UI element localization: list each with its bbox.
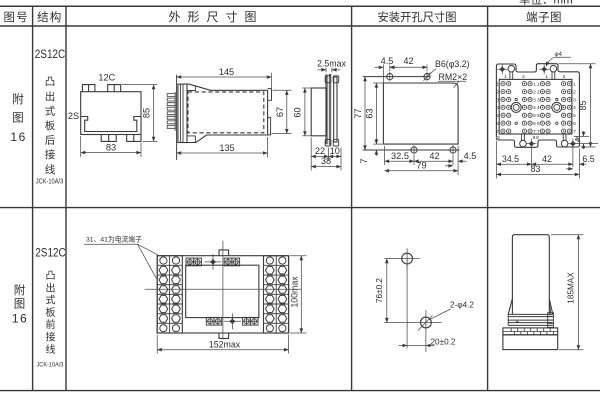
svg-text:10: 10 — [330, 146, 340, 156]
svg-text:式: 式 — [45, 104, 56, 117]
svg-text:接: 接 — [45, 148, 56, 161]
svg-text:79: 79 — [416, 160, 426, 170]
svg-text:185MAX: 185MAX — [567, 272, 576, 304]
svg-text:55: 55 — [533, 113, 541, 119]
svg-text:83: 83 — [106, 143, 116, 153]
svg-text:31、41为电流端子: 31、41为电流端子 — [86, 235, 142, 244]
svg-text:11: 11 — [533, 82, 540, 88]
svg-text:44: 44 — [533, 105, 541, 111]
svg-text:2S12C: 2S12C — [35, 47, 66, 61]
svg-text:76±0.2: 76±0.2 — [375, 278, 384, 303]
svg-text:1: 1 — [573, 82, 576, 88]
svg-text:12C: 12C — [98, 73, 115, 83]
svg-text:单位：mm: 单位：mm — [519, 0, 573, 6]
svg-text:63: 63 — [365, 108, 375, 118]
svg-text:凸: 凸 — [45, 76, 56, 88]
svg-text:3: 3 — [573, 97, 576, 103]
svg-text:端子图: 端子图 — [526, 11, 562, 24]
svg-text:JCK-10A/3: JCK-10A/3 — [36, 177, 64, 186]
svg-text:7: 7 — [359, 158, 369, 163]
svg-text:6: 6 — [573, 121, 576, 127]
svg-text:后: 后 — [45, 135, 56, 147]
svg-text:85: 85 — [578, 101, 588, 111]
svg-text:38: 38 — [321, 156, 331, 166]
svg-text:图: 图 — [12, 112, 24, 125]
svg-text:4: 4 — [496, 105, 499, 111]
svg-text:1: 1 — [504, 74, 507, 80]
svg-text:32.5: 32.5 — [391, 151, 409, 161]
svg-text:66: 66 — [533, 121, 541, 127]
svg-text:16: 16 — [12, 312, 28, 326]
svg-text:7: 7 — [573, 129, 576, 135]
svg-text:22: 22 — [315, 146, 325, 156]
svg-text:4.5: 4.5 — [464, 151, 477, 161]
svg-text:2: 2 — [573, 89, 576, 95]
svg-text:4.5: 4.5 — [381, 56, 394, 66]
svg-text:附: 附 — [12, 92, 24, 106]
svg-text:出: 出 — [45, 90, 56, 103]
svg-text:6: 6 — [496, 121, 499, 127]
svg-text:7: 7 — [496, 129, 499, 135]
svg-text:3: 3 — [496, 97, 499, 103]
svg-text:85: 85 — [142, 108, 152, 118]
svg-text:安装开孔尺寸图: 安装开孔尺寸图 — [378, 10, 457, 24]
svg-text:图: 图 — [14, 298, 26, 311]
svg-text:67: 67 — [275, 107, 285, 117]
svg-text:板: 板 — [45, 119, 56, 132]
svg-text:2.5max: 2.5max — [317, 59, 346, 69]
svg-text:1: 1 — [496, 82, 499, 88]
svg-text:2: 2 — [496, 89, 499, 95]
svg-text:JCK-10A/3: JCK-10A/3 — [37, 362, 64, 369]
svg-text:结构: 结构 — [37, 10, 62, 24]
svg-text:图号: 图号 — [3, 11, 28, 24]
svg-text:42: 42 — [403, 56, 413, 66]
svg-text:接: 接 — [46, 331, 56, 344]
svg-text:4: 4 — [573, 138, 582, 142]
svg-text:1: 1 — [545, 74, 548, 80]
svg-text:凸: 凸 — [46, 270, 56, 282]
svg-text:线: 线 — [46, 343, 56, 356]
svg-text:6.5: 6.5 — [582, 154, 594, 164]
svg-text:152max: 152max — [209, 339, 241, 349]
svg-text:60: 60 — [293, 107, 303, 117]
svg-text:34.5: 34.5 — [502, 154, 519, 164]
svg-text:77: 77 — [353, 108, 363, 118]
svg-text:8: 8 — [497, 135, 500, 141]
svg-text:式: 式 — [46, 294, 56, 307]
svg-text:42: 42 — [429, 151, 439, 161]
svg-text:145: 145 — [219, 67, 234, 77]
svg-text:B6(φ3.2): B6(φ3.2) — [435, 59, 470, 69]
svg-text:2S: 2S — [68, 111, 79, 121]
svg-text:附: 附 — [14, 283, 26, 297]
svg-text:77: 77 — [533, 129, 541, 135]
svg-text:RM2×2: RM2×2 — [439, 72, 468, 82]
svg-text:2: 2 — [522, 74, 525, 80]
svg-text:5: 5 — [573, 113, 576, 119]
svg-text:42: 42 — [542, 154, 552, 164]
svg-text:8: 8 — [536, 135, 539, 141]
svg-text:线: 线 — [45, 163, 56, 176]
svg-text:外形尺寸图: 外形尺寸图 — [168, 10, 263, 24]
svg-text:22: 22 — [533, 89, 541, 95]
svg-text:2S12C: 2S12C — [35, 246, 66, 260]
svg-text:4: 4 — [573, 105, 576, 111]
svg-text:33: 33 — [533, 97, 541, 103]
svg-text:20±0.2: 20±0.2 — [431, 337, 456, 346]
svg-text:83: 83 — [531, 164, 541, 174]
svg-text:2-φ4.2: 2-φ4.2 — [450, 301, 474, 310]
svg-text:2: 2 — [563, 74, 566, 80]
svg-text:5: 5 — [496, 113, 499, 119]
svg-text:出: 出 — [46, 281, 56, 294]
svg-text:板: 板 — [46, 306, 56, 319]
svg-text:135: 135 — [219, 143, 234, 153]
svg-text:前: 前 — [46, 318, 56, 331]
svg-text:16: 16 — [10, 130, 26, 144]
svg-text:100max: 100max — [290, 276, 300, 308]
